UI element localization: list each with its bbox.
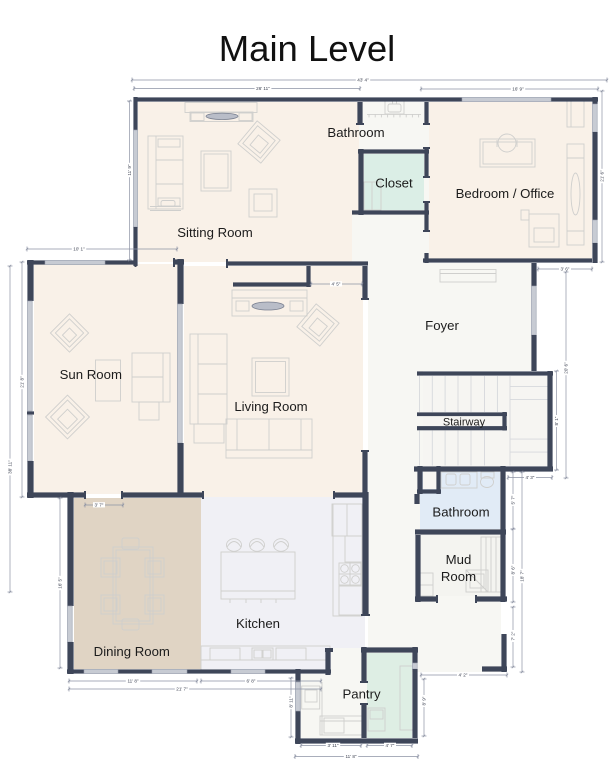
svg-text:Sun Room: Sun Room (60, 367, 122, 382)
svg-text:8' 9": 8' 9" (422, 696, 427, 705)
svg-text:20' 6": 20' 6" (564, 362, 569, 374)
svg-text:38' 11": 38' 11" (8, 460, 13, 474)
svg-text:16' 5": 16' 5" (58, 577, 63, 589)
svg-text:Bathroom: Bathroom (432, 505, 489, 520)
svg-text:18' 7": 18' 7" (520, 570, 525, 582)
svg-text:Bathroom: Bathroom (327, 125, 384, 140)
svg-text:5' 7": 5' 7" (511, 495, 516, 504)
svg-text:11' 9": 11' 9" (127, 164, 132, 175)
svg-text:Kitchen: Kitchen (236, 616, 280, 631)
svg-text:Foyer: Foyer (425, 318, 459, 333)
svg-text:10' 1": 10' 1" (73, 247, 85, 252)
svg-text:21' 8": 21' 8" (20, 376, 25, 388)
svg-text:Sitting Room: Sitting Room (177, 225, 253, 240)
svg-text:3' 7": 3' 7" (95, 503, 104, 508)
svg-text:3' 6": 3' 6" (561, 267, 570, 272)
svg-text:4' 5": 4' 5" (332, 282, 341, 287)
svg-text:11' 8": 11' 8" (127, 679, 138, 684)
svg-text:Pantry: Pantry (342, 687, 381, 702)
svg-text:8' 1": 8' 1" (554, 416, 559, 425)
svg-text:Room: Room (441, 569, 476, 584)
svg-text:21' 6": 21' 6" (600, 170, 605, 182)
svg-text:7' 2": 7' 2" (511, 631, 516, 640)
svg-text:3' 11": 3' 11" (327, 743, 338, 748)
svg-text:Dining Room: Dining Room (94, 644, 170, 659)
svg-text:8' 6": 8' 6" (511, 565, 516, 574)
svg-text:43' 4": 43' 4" (357, 78, 369, 83)
svg-text:21' 7": 21' 7" (176, 687, 188, 692)
svg-text:16' 9": 16' 9" (512, 87, 524, 92)
svg-text:26' 11": 26' 11" (256, 86, 270, 91)
svg-text:6' 8": 6' 8" (247, 679, 256, 684)
svg-text:Main Level: Main Level (219, 28, 396, 69)
svg-text:Stairway: Stairway (443, 416, 486, 428)
svg-text:Closet: Closet (375, 176, 413, 191)
svg-text:8' 11": 8' 11" (289, 696, 294, 707)
svg-text:Mud: Mud (446, 552, 472, 567)
svg-text:4' 3": 4' 3" (526, 475, 535, 480)
svg-text:Living Room: Living Room (234, 399, 307, 414)
svg-text:11' 8": 11' 8" (345, 754, 356, 759)
svg-text:Bedroom / Office: Bedroom / Office (456, 186, 555, 201)
svg-text:4' 7": 4' 7" (386, 743, 395, 748)
svg-text:4' 2": 4' 2" (459, 673, 468, 678)
